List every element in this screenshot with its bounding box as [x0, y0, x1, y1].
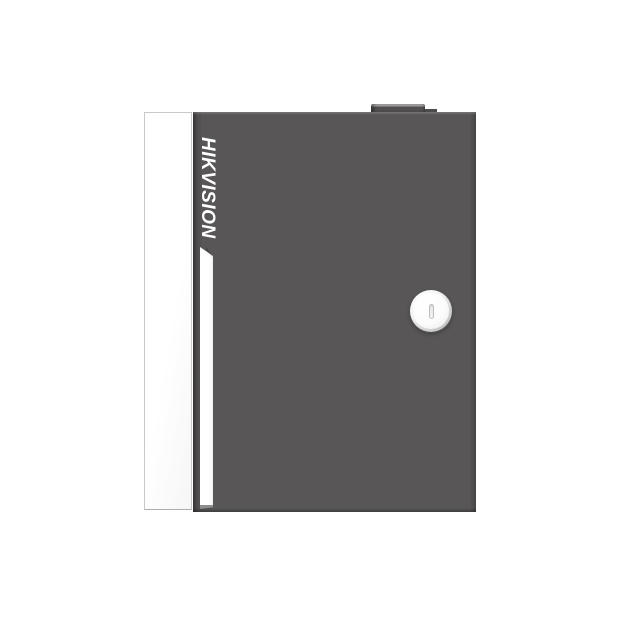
cabinet: HIKVISION — [0, 0, 620, 620]
brand-logo: HIKVISION — [196, 137, 218, 237]
key-lock — [410, 290, 452, 332]
side-panel — [144, 112, 192, 510]
product-photo: HIKVISION — [0, 0, 620, 620]
keyhole-slot — [429, 304, 434, 319]
accent-stripe — [200, 247, 213, 506]
lock-face — [413, 293, 449, 329]
